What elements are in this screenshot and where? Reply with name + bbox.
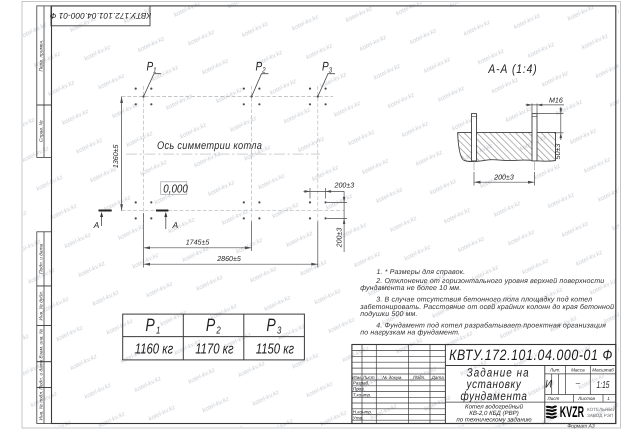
- svg-text:по техническому заданию: по техническому заданию: [456, 417, 532, 424]
- svg-text:2860±5: 2860±5: [216, 255, 241, 263]
- svg-text:Пров.: Пров.: [353, 387, 365, 392]
- svg-text:забетонировать. Расстояние от: забетонировать. Расстояние от осей крайн…: [359, 303, 614, 311]
- svg-text:А-А (1:4): А-А (1:4): [488, 62, 538, 76]
- svg-text:Лист: Лист: [362, 375, 375, 380]
- svg-text:1360±5: 1360±5: [112, 144, 120, 168]
- svg-text:–: –: [575, 379, 581, 388]
- svg-text:Инв. № дубл.: Инв. № дубл.: [38, 291, 44, 321]
- svg-text:КОТЕЛЬНЫЙ: КОТЕЛЬНЫЙ: [587, 406, 616, 412]
- svg-text:И: И: [545, 378, 552, 390]
- svg-text:200±3: 200±3: [334, 182, 355, 190]
- svg-text:Листов: Листов: [577, 396, 595, 401]
- svg-text:1160 кг: 1160 кг: [135, 342, 173, 358]
- svg-text:KVZR: KVZR: [560, 404, 584, 421]
- svg-text:Лит.: Лит.: [549, 368, 561, 373]
- svg-text:Справ. №: Справ. №: [38, 119, 44, 142]
- svg-text:1:15: 1:15: [597, 380, 610, 391]
- svg-text:Формат А3: Формат А3: [567, 424, 595, 430]
- svg-text:фундамента не более 10 мм.: фундамента не более 10 мм.: [360, 284, 461, 292]
- svg-text:КВТУ.172.101.04.000-01 Ф: КВТУ.172.101.04.000-01 Ф: [49, 11, 151, 20]
- svg-text:подушки 500 мм.: подушки 500 мм.: [360, 310, 417, 318]
- svg-text:2. Отклонение от горизонтально: 2. Отклонение от горизонтального уровня …: [375, 277, 604, 285]
- svg-text:ЗАВОД РЭП: ЗАВОД РЭП: [587, 413, 613, 418]
- svg-text:Разраб.: Разраб.: [353, 381, 370, 386]
- svg-text:1. * Размеры для справок.: 1. * Размеры для справок.: [377, 268, 466, 276]
- svg-text:3. В случае отсутствия бетонно: 3. В случае отсутствия бетонного пола пл…: [376, 296, 592, 304]
- svg-text:Утв.: Утв.: [353, 415, 363, 420]
- svg-text:Инв. № подл.: Инв. № подл.: [38, 391, 44, 421]
- svg-text:0,000: 0,000: [163, 183, 188, 195]
- svg-text:А: А: [171, 220, 178, 230]
- svg-text:КВТУ.172.101.04.000-01 Ф: КВТУ.172.101.04.000-01 Ф: [449, 347, 613, 364]
- svg-text:Масштаб: Масштаб: [592, 368, 614, 373]
- svg-text:Дата: Дата: [431, 375, 445, 380]
- svg-text:Масса: Масса: [571, 368, 585, 373]
- svg-text:Изм.: Изм.: [352, 375, 362, 380]
- svg-text:200±3: 200±3: [336, 228, 344, 249]
- svg-text:4. Фундамент под котел разраба: 4. Фундамент под котел разрабатывает про…: [376, 321, 606, 329]
- svg-text:1745±5: 1745±5: [186, 239, 210, 247]
- svg-text:А: А: [93, 220, 100, 230]
- svg-text:М16: М16: [549, 96, 563, 104]
- svg-text:1170 кг: 1170 кг: [195, 342, 233, 358]
- svg-text:фундамента: фундамента: [460, 389, 527, 403]
- svg-text:1150 кг: 1150 кг: [256, 342, 294, 358]
- svg-text:200±3: 200±3: [493, 173, 514, 181]
- svg-text:Т.контр.: Т.контр.: [353, 392, 372, 397]
- svg-text:50±3: 50±3: [554, 144, 562, 160]
- svg-text:по нагрузкам на фундамент.: по нагрузкам на фундамент.: [360, 329, 460, 337]
- svg-text:1: 1: [607, 396, 610, 401]
- svg-text:№ докум.: № докум.: [382, 375, 402, 380]
- svg-text:Подп. и дата: Подп. и дата: [38, 243, 44, 273]
- svg-text:Н.контр.: Н.контр.: [353, 410, 372, 415]
- svg-text:Перв. примен.: Перв. примен.: [38, 40, 44, 72]
- svg-text:Взам. инв. №: Взам. инв. №: [38, 328, 44, 358]
- svg-text:Лист: Лист: [546, 396, 559, 401]
- svg-text:Ось симметрии котла: Ось симметрии котла: [157, 140, 262, 152]
- svg-text:Подп. и дата: Подп. и дата: [38, 359, 44, 389]
- svg-text:Подп.: Подп.: [413, 375, 425, 380]
